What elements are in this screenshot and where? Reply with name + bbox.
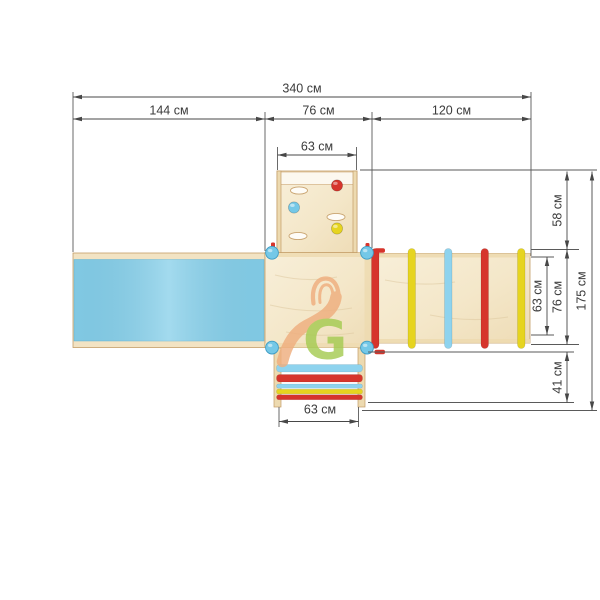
slide-sheen [74,260,264,342]
post-highlight [268,249,272,252]
hold-highlight [333,225,338,228]
watermark-letter: G [303,309,347,372]
dim-label-overall-width: 340 см [282,82,321,96]
dim-label-lower-ladder: 63 см [304,403,336,417]
dim-label-wall-width: 63 см [301,140,333,154]
drawing-canvas: G 340 см 144 см 76 см [0,0,600,600]
ladder-rung-red [372,249,380,349]
corner-post [266,246,279,259]
rung-ladder [372,249,531,349]
lower-rung-yellow [277,389,363,394]
dim-label-ladder-depth: 76 см [551,281,565,313]
dim-label-upper-right: 58 см [551,194,565,226]
climbing-wall [271,171,370,253]
climbing-wall-left-rail [277,171,281,253]
dim-label-lower-right: 41 см [551,361,565,393]
climbing-hold-blue [288,202,299,213]
climbing-hold-yellow [331,223,342,234]
platform-top-edge [265,253,372,258]
hand-hole [291,187,308,194]
dim-label-platform-section: 76 см [302,104,334,118]
dim-label-rung-length: 63 см [531,280,545,312]
post-highlight [363,249,367,252]
climbing-wall-top-band [279,172,355,185]
connector-red [375,248,386,252]
corner-post [361,246,374,259]
ladder-rung-yellow [408,249,416,349]
corner-post [266,341,279,354]
lower-rung-red [277,395,363,400]
dim-label-slide-section: 144 см [149,104,188,118]
post-highlight [268,344,272,347]
post-highlight [363,344,367,347]
hold-highlight [333,182,338,185]
ladder-rung-blue [445,249,453,349]
dim-label-overall-depth: 175 см [575,271,589,310]
technical-drawing: G 340 см 144 см 76 см [0,0,600,600]
platform-right-edge [365,253,373,348]
dim-label-ladder-section: 120 см [432,104,471,118]
slide-top-view [73,253,265,348]
lower-rung-red [277,375,363,383]
ladder-rung-red [481,249,489,349]
lower-rung-blue [277,384,363,388]
climbing-hold-red [331,180,342,191]
hand-hole [289,232,307,239]
hand-hole [327,213,345,220]
ladder-rung-yellow [518,249,526,349]
climbing-wall-right-rail [353,171,357,253]
hold-highlight [290,204,295,207]
